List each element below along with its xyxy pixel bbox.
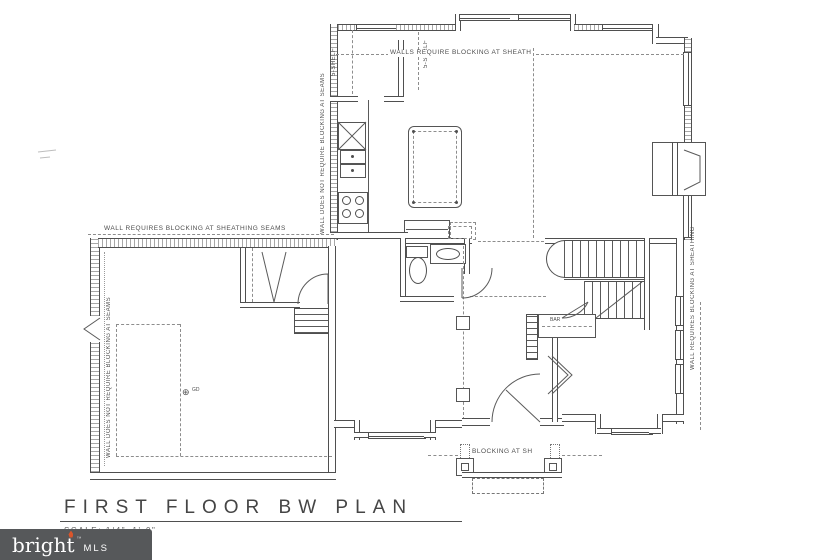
brand-text: bright <box>12 533 74 557</box>
stray-marks <box>38 150 56 158</box>
title-underline <box>60 521 462 522</box>
front-door-swing <box>492 374 540 422</box>
garage-side-door <box>84 318 100 340</box>
trademark-symbol: ™ <box>76 536 81 542</box>
plan-title: FIRST FLOOR BW PLAN <box>64 497 413 519</box>
floor-plan-image: 5-SHELF 5-SHELF WALLS REQUIRE BLOCKING A… <box>0 0 825 560</box>
mud-closet-bifold-door <box>262 252 286 302</box>
mls-text: MLS <box>83 543 109 554</box>
family-swing-door <box>562 302 588 318</box>
stair-direction-line <box>596 282 642 318</box>
corner-cabinet-x <box>338 122 366 150</box>
brightmls-logo: bright ™ MLS <box>0 529 152 560</box>
firebox <box>684 150 700 190</box>
powder-swing-door <box>462 268 492 298</box>
brightmls-wordmark: bright <box>12 535 74 555</box>
mud-closet-swing-door <box>298 274 328 304</box>
family-bifold-door <box>548 356 572 394</box>
plan-linework <box>0 0 825 560</box>
